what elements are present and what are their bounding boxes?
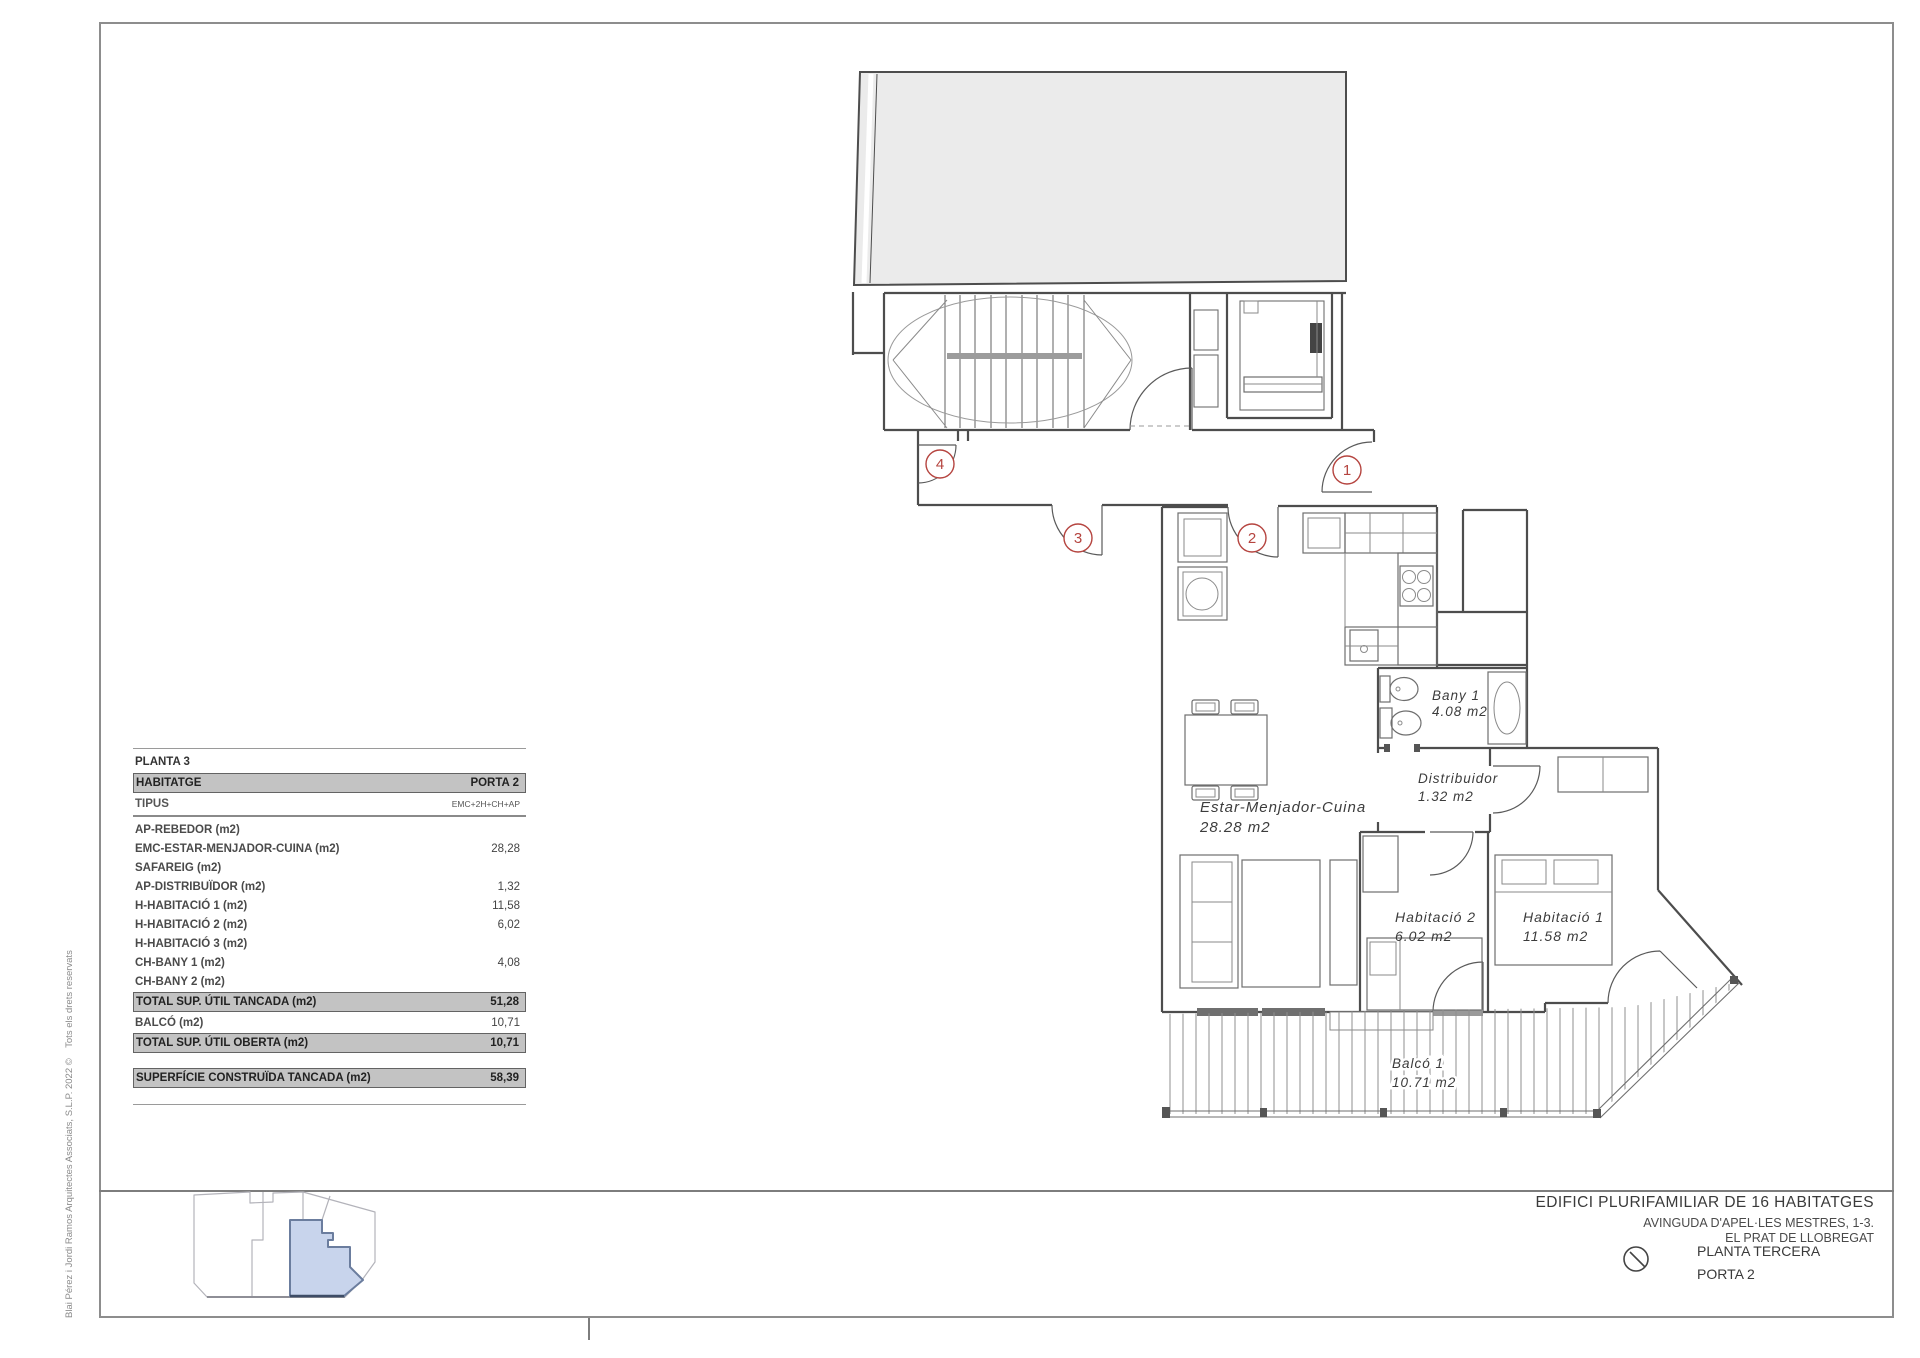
- window: [1433, 1010, 1483, 1016]
- project-address-line1: AVINGUDA D'APEL·LES MESTRES, 1-3.: [1354, 1216, 1874, 1231]
- railing-post: [1500, 1108, 1507, 1117]
- elevator: [1227, 293, 1332, 418]
- window: [1262, 1008, 1325, 1016]
- elevator-machine: [1310, 323, 1322, 353]
- sofa: [1180, 855, 1238, 988]
- key-plan: [194, 1192, 375, 1297]
- bidet: [1391, 711, 1421, 735]
- room-label-balco: Balcó 1: [1392, 1056, 1444, 1071]
- railing-post: [1593, 1109, 1601, 1118]
- dining-table: [1185, 715, 1267, 785]
- room-area-distribuidor: 1.32 m2: [1418, 789, 1474, 804]
- duct: [1194, 310, 1218, 350]
- washing-machine: [1178, 567, 1227, 620]
- balcony-hatch: [1170, 975, 1729, 1114]
- balcony: [1162, 975, 1739, 1118]
- hab2-bed: [1367, 938, 1482, 1010]
- room-label-bany1: Bany 1: [1432, 688, 1480, 703]
- toilet: [1390, 678, 1418, 701]
- room-area-hab2: 6.02 m2: [1395, 928, 1453, 944]
- floor-plan: 1 2 3 4: [0, 0, 1920, 1358]
- window: [1197, 1008, 1258, 1016]
- bidet-tank: [1380, 708, 1392, 738]
- title-block: EDIFICI PLURIFAMILIAR DE 16 HABITATGES A…: [1354, 1194, 1874, 1246]
- hab2-balcony-door: [1433, 962, 1483, 1012]
- balcony-step: [1330, 1012, 1433, 1030]
- railing-post: [1162, 1107, 1170, 1118]
- rug: [1242, 860, 1320, 987]
- room-label-estar: Estar-Menjador-Cuina: [1200, 799, 1366, 816]
- plan-identifier: PLANTA TERCERA PORTA 2: [1697, 1240, 1820, 1286]
- landing: [884, 430, 1437, 557]
- door-badge-4-number: 4: [936, 456, 944, 473]
- door-badge-3-number: 3: [1074, 530, 1082, 547]
- plan-unit: PORTA 2: [1697, 1263, 1820, 1286]
- hab1-door: [1493, 766, 1540, 813]
- hab1-balcony-door: [1608, 951, 1697, 1003]
- room-area-balco: 10.71 m2: [1392, 1075, 1456, 1090]
- door-badges: 1 2 3 4: [926, 450, 1361, 552]
- room-label-hab1: Habitació 1: [1523, 909, 1604, 925]
- duct: [1194, 355, 1218, 407]
- apartment-walls: [1162, 507, 1742, 1030]
- hab2-wardrobe: [1363, 836, 1398, 892]
- hab2-door: [1430, 832, 1473, 875]
- plan-name: PLANTA TERCERA: [1697, 1240, 1820, 1263]
- stair-core: [853, 292, 1346, 430]
- adjacent-roof: [854, 72, 1346, 285]
- appliance: [1178, 513, 1227, 562]
- fridge: [1303, 513, 1345, 553]
- room-area-bany1: 4.08 m2: [1432, 704, 1488, 719]
- sideboard: [1330, 860, 1357, 985]
- railing-post: [1730, 976, 1738, 984]
- room-area-hab1: 11.58 m2: [1523, 928, 1588, 944]
- room-label-hab2: Habitació 2: [1395, 909, 1476, 925]
- kitchen: [1178, 513, 1437, 665]
- key-plan-highlight: [290, 1220, 363, 1296]
- drawing-sheet: Blai Pérez i Jordi Ramos Arquitectes Ass…: [0, 0, 1920, 1358]
- room-area-estar: 28.28 m2: [1199, 819, 1271, 836]
- railing-post: [1380, 1108, 1387, 1117]
- stair-door: [1130, 368, 1192, 430]
- stair-mid-landing: [947, 353, 1082, 359]
- threshold: [1384, 744, 1390, 752]
- door-badge-1-number: 1: [1343, 462, 1351, 479]
- door-badge-2-number: 2: [1248, 530, 1256, 547]
- railing-post: [1260, 1108, 1267, 1117]
- room-label-distribuidor: Distribuidor: [1418, 771, 1498, 786]
- threshold: [1414, 744, 1420, 752]
- north-arrow-icon: [1621, 1244, 1653, 1276]
- toilet-tank: [1380, 676, 1390, 702]
- project-title: EDIFICI PLURIFAMILIAR DE 16 HABITATGES: [1354, 1194, 1874, 1212]
